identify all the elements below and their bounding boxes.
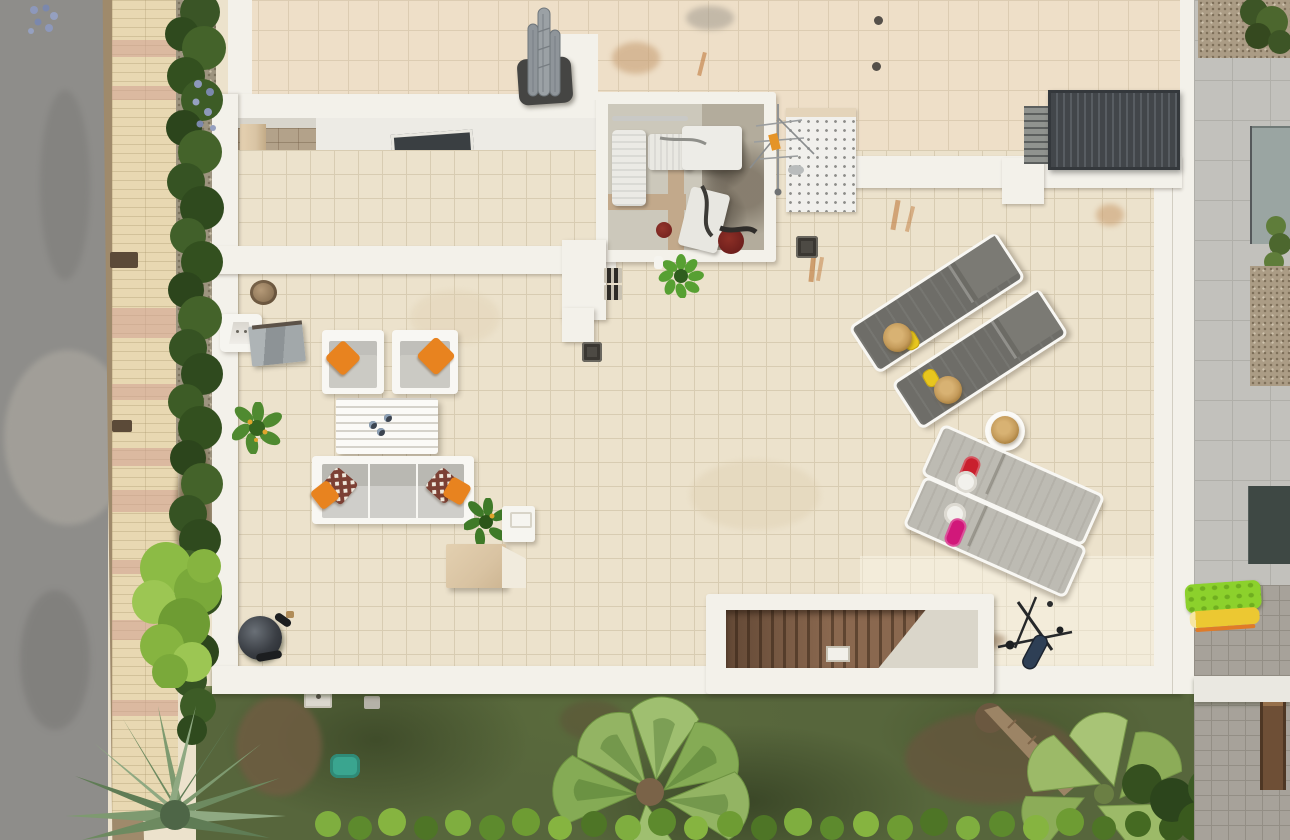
sidewalk-drain-plate	[110, 252, 138, 268]
pergola-roof	[1048, 90, 1180, 170]
cube-planter-recess	[510, 512, 532, 528]
espresso-cup	[377, 428, 385, 436]
parapet-stub	[1002, 158, 1044, 204]
terrace-drain	[582, 342, 602, 362]
tv-antenna	[744, 98, 824, 200]
terrace-top-wall	[212, 246, 616, 274]
road-dark-patch	[40, 90, 90, 280]
bright-bush	[106, 538, 236, 688]
espresso-cup	[369, 421, 377, 429]
terrace-blotch	[690, 460, 820, 530]
wooden-ladder-steps	[1260, 702, 1286, 790]
aerial-photo-canvas	[0, 0, 1290, 840]
neighbor-dark-window	[1248, 486, 1290, 564]
vine-plant	[658, 254, 704, 298]
chimney-block-lower	[562, 308, 594, 342]
roof-drain-dot	[872, 62, 881, 71]
neighbor-bush-mid	[1262, 214, 1290, 274]
boundary-wall-stub	[1194, 676, 1290, 702]
terrace-stain	[1096, 204, 1124, 226]
vent-brick	[604, 285, 622, 300]
terrace-drain	[796, 236, 818, 258]
neighbor-gravel-band	[1250, 266, 1290, 386]
neighbor-bush-top	[1232, 0, 1290, 58]
pool-floats	[1184, 579, 1267, 636]
sidewalk-drain-plate	[112, 420, 132, 432]
roof-stain	[612, 42, 660, 74]
doormat	[826, 646, 850, 662]
straw-hat	[934, 376, 962, 404]
steps-shading	[726, 610, 876, 668]
round-planter	[250, 280, 277, 305]
agapanthus-flowers	[186, 76, 224, 136]
espresso-cup	[384, 414, 392, 422]
straw-hat	[883, 323, 912, 352]
stone-plinth	[446, 544, 506, 588]
straw-hat	[991, 416, 1019, 444]
lawn-utility-box	[364, 696, 380, 709]
rotisserie-grill	[990, 592, 1090, 672]
party-wall-top	[1180, 0, 1194, 164]
white-bottle	[654, 256, 663, 269]
right-wall-seam	[1172, 150, 1173, 694]
roof-stain	[686, 6, 734, 30]
fan-palm-left	[38, 688, 308, 840]
cactus-sculpture	[524, 2, 564, 100]
vent-brick	[604, 268, 622, 283]
silver-pipe	[612, 116, 688, 121]
grill-handle-tip	[286, 611, 294, 618]
lounger-fold-line	[985, 453, 1006, 494]
coffee-table	[336, 398, 438, 454]
agapanthus-flowers	[24, 2, 64, 38]
pad-dot	[316, 694, 321, 699]
roof-drain-dot	[874, 16, 883, 25]
lounger-fold-line	[967, 505, 988, 546]
irrigation-cover	[330, 754, 360, 778]
